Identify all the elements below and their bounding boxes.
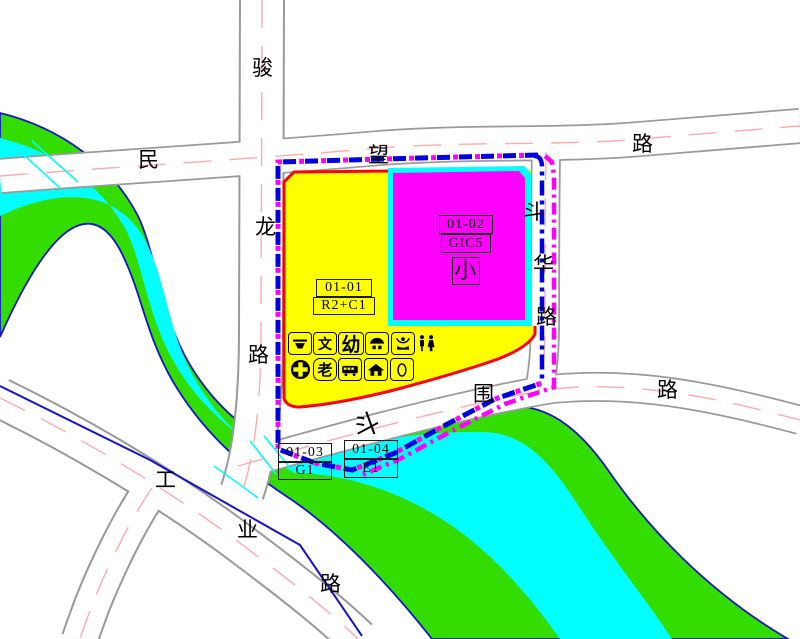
road-char-junlong-3: 路 xyxy=(248,345,269,366)
canopy-stall-icon xyxy=(365,332,389,355)
community-service-icon xyxy=(391,332,415,355)
plan-map: 骏 龙 路 民 望 路 斗 华 路 斗 围 路 工 业 路 01-01 R2+C… xyxy=(0,0,800,639)
road-char-junlong-1: 骏 xyxy=(252,58,273,79)
market-icon xyxy=(288,332,312,355)
parcel-0102-code: GIC5 xyxy=(441,234,491,253)
culture-station-icon: 文 xyxy=(313,332,337,355)
road-char-douhua-2: 华 xyxy=(533,255,554,276)
parcel-0101-code: R2+C1 xyxy=(313,297,375,315)
road-char-junlong-2: 龙 xyxy=(255,217,276,238)
parcel-0102-note: 小 xyxy=(452,257,480,285)
kindergarten-icon: 幼 xyxy=(338,332,364,355)
parcel-0103-code: G1 xyxy=(278,462,332,480)
parcel-0102-id: 01-02 xyxy=(439,215,493,234)
elderly-care-icon: 老 xyxy=(313,358,337,381)
parcel-0101-id: 01-01 xyxy=(316,279,372,297)
refuse-station-icon xyxy=(390,358,414,381)
clinic-icon xyxy=(288,358,312,381)
road-char-minwang-1: 民 xyxy=(138,150,159,171)
road-char-douwei-2: 围 xyxy=(473,384,494,405)
road-char-douwei-3: 路 xyxy=(657,380,678,401)
parcel-0104-code: E1 xyxy=(344,459,398,478)
housing-office-icon xyxy=(364,358,388,381)
road-char-douhua-1: 斗 xyxy=(523,202,544,223)
bus-station-icon xyxy=(338,358,362,381)
road-char-gongye-1: 工 xyxy=(155,470,176,491)
road-char-minwang-2: 望 xyxy=(368,145,389,166)
parcel-0103-id: 01-03 xyxy=(278,443,332,462)
public-toilet-icon xyxy=(414,332,440,355)
map-canvas xyxy=(0,0,800,639)
road-char-douhua-3: 路 xyxy=(536,307,557,328)
road-char-gongye-3: 路 xyxy=(320,574,341,595)
road-char-gongye-2: 业 xyxy=(237,520,258,541)
road-char-minwang-3: 路 xyxy=(632,134,653,155)
parcel-0104-id: 01-04 xyxy=(344,440,398,459)
